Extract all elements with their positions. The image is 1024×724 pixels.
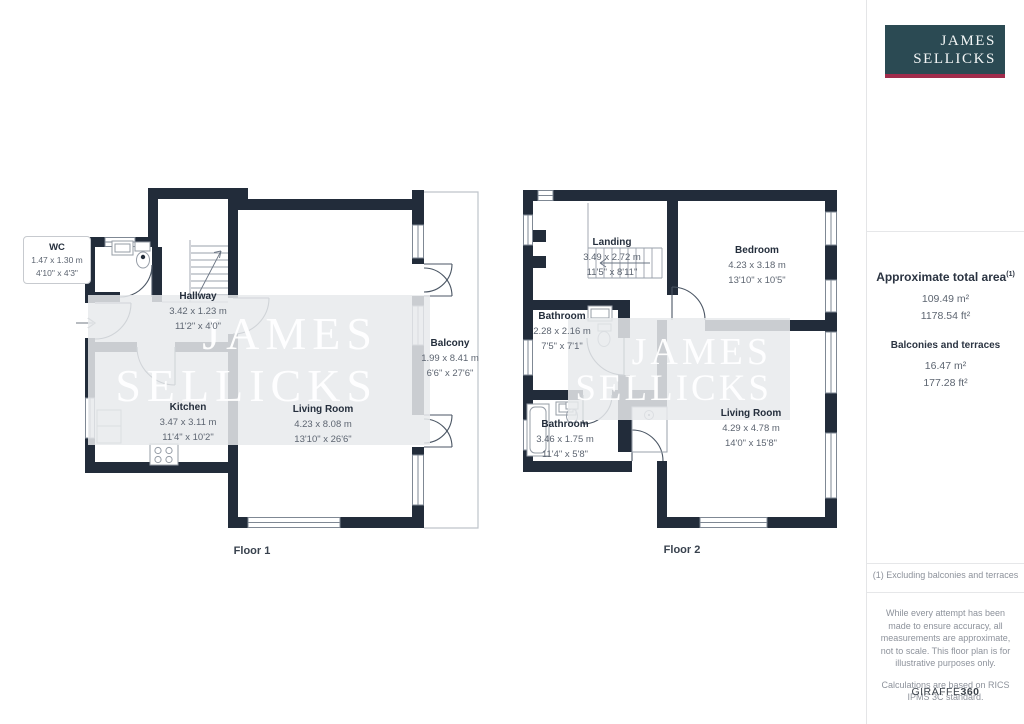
logo-line1: JAMES bbox=[893, 32, 996, 50]
info-sidebar: JAMES SELLICKS Approximate total area(1)… bbox=[866, 0, 1024, 724]
floor2-watermark: JAMES SELLICKS bbox=[568, 318, 790, 420]
giraffe360-brand: GIRAFFE360 bbox=[867, 686, 1024, 698]
floor1-plan: JAMES SELLICKS bbox=[76, 188, 478, 528]
area-footnote: (1) Excluding balconies and terraces bbox=[867, 570, 1024, 580]
sidebar-divider bbox=[867, 563, 1024, 564]
room-label-bathroom-2: Bathroom 3.46 x 1.75 m 11'4" x 5'8" bbox=[536, 417, 594, 462]
total-area-title: Approximate total area(1) bbox=[867, 270, 1024, 284]
footnote-marker: (1) bbox=[1006, 271, 1015, 278]
watermark-line1: JAMES bbox=[632, 331, 772, 373]
agency-logo-box: JAMES SELLICKS bbox=[885, 25, 1005, 74]
sidebar-divider bbox=[867, 592, 1024, 593]
room-label-living-room-1: Living Room 4.23 x 8.08 m 13'10" x 26'6" bbox=[293, 402, 354, 447]
watermark-line2: SELLICKS bbox=[575, 368, 772, 409]
logo-line2: SELLICKS bbox=[893, 50, 996, 68]
floor1-watermark: JAMES SELLICKS bbox=[88, 295, 430, 445]
total-area-ft2: 1178.54 ft² bbox=[867, 310, 1024, 322]
agency-logo: JAMES SELLICKS bbox=[885, 25, 1005, 78]
giraffe360-suffix: 360 bbox=[960, 686, 979, 698]
floorplan-page: JAMES SELLICKS bbox=[0, 0, 1024, 724]
room-label-landing: Landing 3.49 x 2.72 m 11'5" x 8'11" bbox=[583, 235, 641, 280]
wc-toilet-icon bbox=[135, 242, 150, 268]
room-label-bathroom-1: Bathroom 2.28 x 2.16 m 7'5" x 7'1" bbox=[533, 309, 591, 354]
sidebar-divider bbox=[867, 231, 1024, 232]
room-label-bedroom: Bedroom 4.23 x 3.18 m 13'10" x 10'5" bbox=[728, 243, 786, 288]
wc-sink-icon bbox=[112, 241, 133, 255]
floor1-caption: Floor 1 bbox=[234, 545, 271, 557]
room-label-hallway: Hallway 3.42 x 1.23 m 11'2" x 4'0" bbox=[169, 289, 227, 334]
watermark-line1: JAMES bbox=[202, 308, 378, 359]
room-label-kitchen: Kitchen 3.47 x 3.11 m 11'4" x 10'2" bbox=[160, 400, 217, 445]
balconies-title: Balconies and terraces bbox=[867, 340, 1024, 351]
total-area-m2: 109.49 m² bbox=[867, 293, 1024, 305]
stove-icon bbox=[150, 444, 178, 465]
balconies-m2: 16.47 m² bbox=[867, 360, 1024, 372]
floor2-plan: JAMES SELLICKS bbox=[523, 190, 837, 528]
area-summary: Approximate total area(1) 109.49 m² 1178… bbox=[867, 270, 1024, 389]
giraffe360-name: GIRAFFE bbox=[911, 686, 960, 698]
room-label-balcony: Balcony 1.99 x 8.41 m 6'6" x 27'6" bbox=[421, 336, 479, 381]
logo-stripe bbox=[885, 74, 1005, 78]
balconies-ft2: 177.28 ft² bbox=[867, 377, 1024, 389]
room-label-wc: WC 1.47 x 1.30 m 4'10" x 4'3" bbox=[23, 236, 91, 284]
disclaimer-text: While every attempt has been made to ens… bbox=[874, 607, 1017, 670]
room-label-living-room-2: Living Room 4.29 x 4.78 m 14'0" x 15'8" bbox=[721, 406, 782, 451]
floor2-caption: Floor 2 bbox=[664, 544, 701, 556]
